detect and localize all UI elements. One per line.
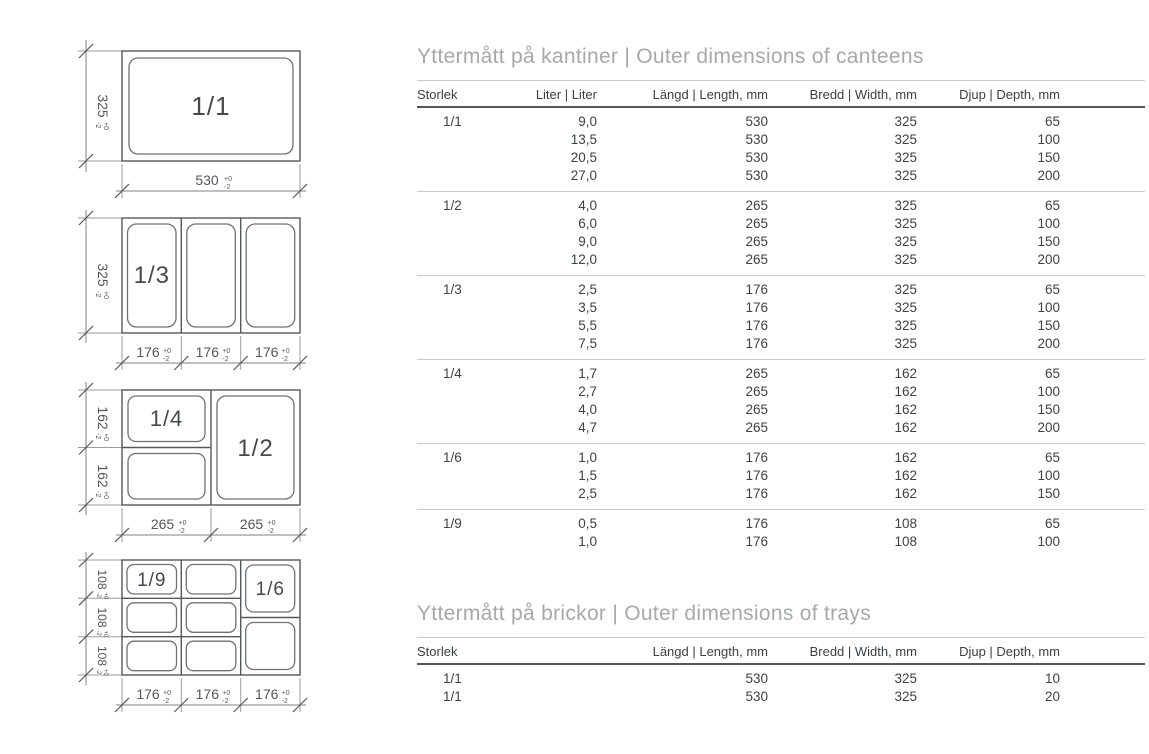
value-cell: 162 <box>768 360 917 384</box>
value-cell: 5,5 <box>527 317 597 335</box>
value-cell: 9,0 <box>527 233 597 251</box>
dim-value: 108 <box>95 569 109 589</box>
tolerance-plus: +0 <box>102 631 108 639</box>
value-cell: 2,5 <box>527 485 597 510</box>
dim-value: 176 <box>255 686 279 702</box>
storlek-cell: 1/1 <box>417 688 527 712</box>
filler-cell <box>1060 383 1145 401</box>
value-cell: 265 <box>597 192 768 216</box>
storlek-cell <box>417 299 527 317</box>
value-cell: 162 <box>768 444 917 468</box>
value-cell: 530 <box>527 664 768 688</box>
value-cell: 265 <box>597 233 768 251</box>
col-header-storlek: Storlek <box>417 81 527 108</box>
filler-cell <box>1060 401 1145 419</box>
value-cell: 65 <box>917 444 1060 468</box>
filler-cell <box>1060 317 1145 335</box>
value-cell: 10 <box>917 664 1060 688</box>
value-cell: 65 <box>917 192 1060 216</box>
value-cell: 65 <box>917 510 1060 534</box>
tolerance-plus: +0 <box>102 433 109 441</box>
table-row: 1/61,017616265 <box>417 444 1145 468</box>
side-dimension-label: 162 +0 -2 <box>94 464 111 499</box>
bottom-dimension-label: 176 +0 -2 <box>255 686 290 705</box>
value-cell: 325 <box>768 149 917 167</box>
bottom-dimension-label: 530 +0 -2 <box>195 172 232 191</box>
tolerance-plus: +0 <box>282 690 290 697</box>
bottom-dimension-label: 176 +0 -2 <box>196 344 231 363</box>
tolerance-minus: -2 <box>94 122 101 128</box>
side-dimension-label: 108 +0 -2 <box>95 569 109 600</box>
value-cell: 6,0 <box>527 215 597 233</box>
value-cell: 150 <box>917 485 1060 510</box>
storlek-cell <box>417 317 527 335</box>
col-header-depth: Djup | Depth, mm <box>917 81 1060 108</box>
dim-value: 176 <box>196 686 220 702</box>
dim-value: 162 <box>95 406 111 430</box>
value-cell: 325 <box>768 276 917 300</box>
tolerance-plus: +0 <box>179 520 187 527</box>
tolerance-plus: +0 <box>282 348 290 355</box>
trays-table-header: Storlek Längd | Length, mm Bredd | Width… <box>417 638 1145 665</box>
table-row: 1/90,517610865 <box>417 510 1145 534</box>
filler-cell <box>1060 688 1145 712</box>
filler-cell <box>1060 419 1145 444</box>
size-group-1-2: 1/24,0265325656,02653251009,026532515012… <box>417 192 1145 276</box>
canteens-table: Storlek Liter | Liter Längd | Length, mm… <box>417 80 1145 557</box>
dim-value: 325 <box>95 94 111 118</box>
dim-value: 176 <box>136 344 160 360</box>
size-group-1-3: 1/32,5176325653,51763251005,51763251507,… <box>417 276 1145 360</box>
filler-cell <box>1060 192 1145 216</box>
value-cell: 150 <box>917 149 1060 167</box>
tolerance-minus: -2 <box>222 698 228 705</box>
value-cell: 325 <box>768 215 917 233</box>
dim-value: 265 <box>240 516 264 532</box>
pan-label: 1/4 <box>150 406 184 431</box>
tolerance-plus: +0 <box>102 291 109 299</box>
table-row: 20,5530325150 <box>417 149 1145 167</box>
filler-cell <box>1060 215 1145 233</box>
pan-label: 1/3 <box>134 262 170 289</box>
storlek-cell <box>417 383 527 401</box>
side-dimension-label: 162 +0 -2 <box>94 406 111 441</box>
dim-value: 108 <box>95 607 109 627</box>
tolerance-plus: +0 <box>102 669 108 677</box>
value-cell: 265 <box>597 251 768 276</box>
table-row: 6,0265325100 <box>417 215 1145 233</box>
dim-value: 325 <box>95 263 111 287</box>
pan-outline-1-3 <box>187 224 236 327</box>
side-dimension-label: 108 +0 -2 <box>95 646 109 677</box>
size-group-1-1: 1/19,05303256513,553032510020,5530325150… <box>417 107 1145 192</box>
tolerance-plus: +0 <box>102 593 108 601</box>
storlek-cell <box>417 533 527 557</box>
table-row: 3,5176325100 <box>417 299 1145 317</box>
tolerance-plus: +0 <box>224 176 232 183</box>
filler-cell <box>1060 444 1145 468</box>
value-cell: 265 <box>597 215 768 233</box>
value-cell: 176 <box>597 335 768 360</box>
storlek-cell <box>417 467 527 485</box>
pan-label: 1/2 <box>237 435 273 462</box>
table-row: 1/153032520 <box>417 688 1145 712</box>
storlek-cell: 1/6 <box>417 444 527 468</box>
value-cell: 200 <box>917 335 1060 360</box>
table-row: 1/41,726516265 <box>417 360 1145 384</box>
value-cell: 265 <box>597 383 768 401</box>
tolerance-minus: -2 <box>94 433 101 439</box>
value-cell: 150 <box>917 317 1060 335</box>
pan-outline-1-9 <box>186 641 236 671</box>
table-row: 2,7265162100 <box>417 383 1145 401</box>
value-cell: 176 <box>597 533 768 557</box>
pan-label: 1/9 <box>137 570 166 591</box>
filler-cell <box>1060 360 1145 384</box>
pan-label: 1/6 <box>256 579 285 600</box>
value-cell: 108 <box>768 533 917 557</box>
value-cell: 13,5 <box>527 131 597 149</box>
col-header-width: Bredd | Width, mm <box>768 81 917 108</box>
value-cell: 1,7 <box>527 360 597 384</box>
value-cell: 200 <box>917 251 1060 276</box>
table-row: 12,0265325200 <box>417 251 1145 276</box>
size-group-1-6: 1/61,0176162651,51761621002,5176162150 <box>417 444 1145 510</box>
pan-size-diagrams: 1/1 325 +0 -2 530 +0 -2 <box>70 36 410 727</box>
storlek-cell: 1/2 <box>417 192 527 216</box>
diagram-1-9-1-6: 1/9 1/6 108 +0 -2 108 +0 -2 108 +0 -2 17… <box>70 552 405 727</box>
storlek-cell: 1/4 <box>417 360 527 384</box>
value-cell: 325 <box>768 192 917 216</box>
diagram-1-4-1-2: 1/4 1/2 162 +0 -2 162 +0 -2 265 +0 -2 26… <box>70 382 405 552</box>
filler-cell <box>1060 533 1145 557</box>
value-cell: 530 <box>597 167 768 192</box>
dim-value: 530 <box>195 172 219 188</box>
storlek-cell <box>417 167 527 192</box>
value-cell: 176 <box>597 510 768 534</box>
tolerance-plus: +0 <box>102 122 109 130</box>
tolerance-minus: -2 <box>94 291 101 297</box>
bottom-dimension-label: 176 +0 -2 <box>136 344 171 363</box>
value-cell: 150 <box>917 401 1060 419</box>
tolerance-minus: -2 <box>224 184 230 191</box>
pan-outline-1-6 <box>246 623 295 670</box>
tolerance-minus: -2 <box>222 356 228 363</box>
tolerance-plus: +0 <box>268 520 276 527</box>
filler-cell <box>1060 131 1145 149</box>
table-row: 1/32,517632565 <box>417 276 1145 300</box>
value-cell: 325 <box>768 664 917 688</box>
value-cell: 4,7 <box>527 419 597 444</box>
filler-cell <box>1060 299 1145 317</box>
table-row: 7,5176325200 <box>417 335 1145 360</box>
value-cell: 176 <box>597 276 768 300</box>
value-cell: 9,0 <box>527 107 597 131</box>
storlek-cell: 1/1 <box>417 107 527 131</box>
value-cell: 200 <box>917 419 1060 444</box>
dimension-tables: Yttermått på kantiner | Outer dimensions… <box>417 44 1147 712</box>
pan-outline-1-4 <box>128 454 205 500</box>
value-cell: 325 <box>768 107 917 131</box>
tolerance-minus: -2 <box>163 356 169 363</box>
table-row: 1/153032510 <box>417 664 1145 688</box>
bottom-dimension-label: 176 +0 -2 <box>136 686 171 705</box>
value-cell: 4,0 <box>527 192 597 216</box>
storlek-cell <box>417 233 527 251</box>
tolerance-minus: -2 <box>95 593 101 599</box>
value-cell: 176 <box>597 317 768 335</box>
value-cell: 530 <box>597 149 768 167</box>
tolerance-plus: +0 <box>222 348 230 355</box>
tolerance-plus: +0 <box>163 690 171 697</box>
value-cell: 65 <box>917 360 1060 384</box>
value-cell: 27,0 <box>527 167 597 192</box>
storlek-cell <box>417 251 527 276</box>
bottom-dimension-label: 265 +0 -2 <box>240 516 276 535</box>
value-cell: 100 <box>917 533 1060 557</box>
value-cell: 325 <box>768 317 917 335</box>
canteens-title: Yttermått på kantiner | Outer dimensions… <box>417 44 1147 70</box>
pan-label: 1/1 <box>191 91 230 121</box>
tolerance-minus: -2 <box>163 698 169 705</box>
value-cell: 176 <box>597 299 768 317</box>
table-row: 1/19,053032565 <box>417 107 1145 131</box>
table-row: 27,0530325200 <box>417 167 1145 192</box>
tolerance-plus: +0 <box>102 491 109 499</box>
value-cell: 150 <box>917 233 1060 251</box>
filler-cell <box>1060 276 1145 300</box>
spec-sheet-page: 1/1 325 +0 -2 530 +0 -2 <box>0 0 1149 754</box>
value-cell: 2,7 <box>527 383 597 401</box>
tolerance-minus: -2 <box>282 698 288 705</box>
value-cell: 1,0 <box>527 444 597 468</box>
value-cell: 265 <box>597 401 768 419</box>
value-cell: 265 <box>597 419 768 444</box>
value-cell: 176 <box>597 444 768 468</box>
tolerance-minus: -2 <box>179 528 185 535</box>
tolerance-minus: -2 <box>268 528 274 535</box>
pan-outline-1-3 <box>246 224 295 327</box>
table-row: 4,7265162200 <box>417 419 1145 444</box>
value-cell: 325 <box>768 131 917 149</box>
value-cell: 176 <box>597 485 768 510</box>
pan-outline-1-9 <box>186 565 236 595</box>
value-cell: 2,5 <box>527 276 597 300</box>
filler-cell <box>1060 335 1145 360</box>
value-cell: 7,5 <box>527 335 597 360</box>
value-cell: 325 <box>768 167 917 192</box>
value-cell: 162 <box>768 419 917 444</box>
table-row: 9,0265325150 <box>417 233 1145 251</box>
col-header-filler <box>1060 81 1145 108</box>
col-header-filler <box>1060 638 1145 665</box>
table-row: 1,0176108100 <box>417 533 1145 557</box>
value-cell: 0,5 <box>527 510 597 534</box>
value-cell: 1,0 <box>527 533 597 557</box>
col-header-depth: Djup | Depth, mm <box>917 638 1060 665</box>
value-cell: 176 <box>597 467 768 485</box>
storlek-cell <box>417 149 527 167</box>
dim-value: 265 <box>151 516 175 532</box>
col-header-length: Längd | Length, mm <box>597 81 768 108</box>
filler-cell <box>1060 485 1145 510</box>
trays-rows: 1/1530325101/153032520 <box>417 664 1145 712</box>
value-cell: 530 <box>597 131 768 149</box>
bottom-dimension-label: 176 +0 -2 <box>255 344 290 363</box>
canteens-table-header: Storlek Liter | Liter Längd | Length, mm… <box>417 81 1145 108</box>
dim-value: 176 <box>196 344 220 360</box>
value-cell: 65 <box>917 107 1060 131</box>
dim-value: 176 <box>255 344 279 360</box>
tolerance-plus: +0 <box>222 690 230 697</box>
value-cell: 4,0 <box>527 401 597 419</box>
storlek-cell <box>417 215 527 233</box>
table-row: 13,5530325100 <box>417 131 1145 149</box>
pan-outline-1-9 <box>127 641 177 671</box>
bottom-dimension-label: 265 +0 -2 <box>151 516 187 535</box>
size-group-1-9: 1/90,5176108651,0176108100 <box>417 510 1145 558</box>
value-cell: 162 <box>768 383 917 401</box>
value-cell: 100 <box>917 299 1060 317</box>
value-cell: 162 <box>768 401 917 419</box>
value-cell: 108 <box>768 510 917 534</box>
col-header-length: Längd | Length, mm <box>527 638 768 665</box>
tolerance-plus: +0 <box>163 348 171 355</box>
value-cell: 162 <box>768 467 917 485</box>
tolerance-minus: -2 <box>95 669 101 675</box>
storlek-cell <box>417 335 527 360</box>
filler-cell <box>1060 510 1145 534</box>
dim-value: 176 <box>136 686 160 702</box>
pan-outline-1-9 <box>127 603 177 633</box>
bottom-dimension-label: 176 +0 -2 <box>196 686 231 705</box>
table-row: 5,5176325150 <box>417 317 1145 335</box>
value-cell: 325 <box>768 251 917 276</box>
value-cell: 530 <box>597 107 768 131</box>
value-cell: 325 <box>768 688 917 712</box>
value-cell: 530 <box>527 688 768 712</box>
filler-cell <box>1060 664 1145 688</box>
size-group-1-4: 1/41,7265162652,72651621004,02651621504,… <box>417 360 1145 444</box>
value-cell: 200 <box>917 167 1060 192</box>
storlek-cell <box>417 419 527 444</box>
value-cell: 1,5 <box>527 467 597 485</box>
storlek-cell <box>417 485 527 510</box>
value-cell: 325 <box>768 335 917 360</box>
col-header-width: Bredd | Width, mm <box>768 638 917 665</box>
storlek-cell: 1/1 <box>417 664 527 688</box>
storlek-cell <box>417 131 527 149</box>
value-cell: 65 <box>917 276 1060 300</box>
filler-cell <box>1060 467 1145 485</box>
value-cell: 325 <box>768 233 917 251</box>
table-row: 2,5176162150 <box>417 485 1145 510</box>
storlek-cell <box>417 401 527 419</box>
value-cell: 100 <box>917 215 1060 233</box>
value-cell: 162 <box>768 485 917 510</box>
filler-cell <box>1060 233 1145 251</box>
filler-cell <box>1060 107 1145 131</box>
tolerance-minus: -2 <box>94 491 101 497</box>
diagram-1-1: 1/1 325 +0 -2 530 +0 -2 <box>70 36 405 204</box>
table-row: 1/24,026532565 <box>417 192 1145 216</box>
col-header-storlek: Storlek <box>417 638 527 665</box>
value-cell: 100 <box>917 467 1060 485</box>
value-cell: 100 <box>917 383 1060 401</box>
filler-cell <box>1060 149 1145 167</box>
value-cell: 12,0 <box>527 251 597 276</box>
side-dimension-label: 325 +0 -2 <box>94 263 111 299</box>
value-cell: 3,5 <box>527 299 597 317</box>
table-row: 4,0265162150 <box>417 401 1145 419</box>
storlek-cell: 1/9 <box>417 510 527 534</box>
value-cell: 325 <box>768 299 917 317</box>
trays-title: Yttermått på brickor | Outer dimensions … <box>417 601 1147 627</box>
tolerance-minus: -2 <box>95 631 101 637</box>
dim-value: 108 <box>95 646 109 666</box>
side-dimension-label: 325 +0 -2 <box>94 94 111 130</box>
col-header-liter: Liter | Liter <box>527 81 597 108</box>
value-cell: 20,5 <box>527 149 597 167</box>
value-cell: 20 <box>917 688 1060 712</box>
diagram-1-3: 1/3 325 +0 -2 176 +0 -2 176 +0 -2 176 +0… <box>70 210 405 382</box>
filler-cell <box>1060 167 1145 192</box>
value-cell: 265 <box>597 360 768 384</box>
side-dimension-label: 108 +0 -2 <box>95 607 109 638</box>
tolerance-minus: -2 <box>282 356 288 363</box>
storlek-cell: 1/3 <box>417 276 527 300</box>
table-row: 1,5176162100 <box>417 467 1145 485</box>
filler-cell <box>1060 251 1145 276</box>
value-cell: 100 <box>917 131 1060 149</box>
dim-value: 162 <box>95 464 111 488</box>
trays-table: Storlek Längd | Length, mm Bredd | Width… <box>417 637 1145 712</box>
pan-outline-1-9 <box>186 603 236 633</box>
